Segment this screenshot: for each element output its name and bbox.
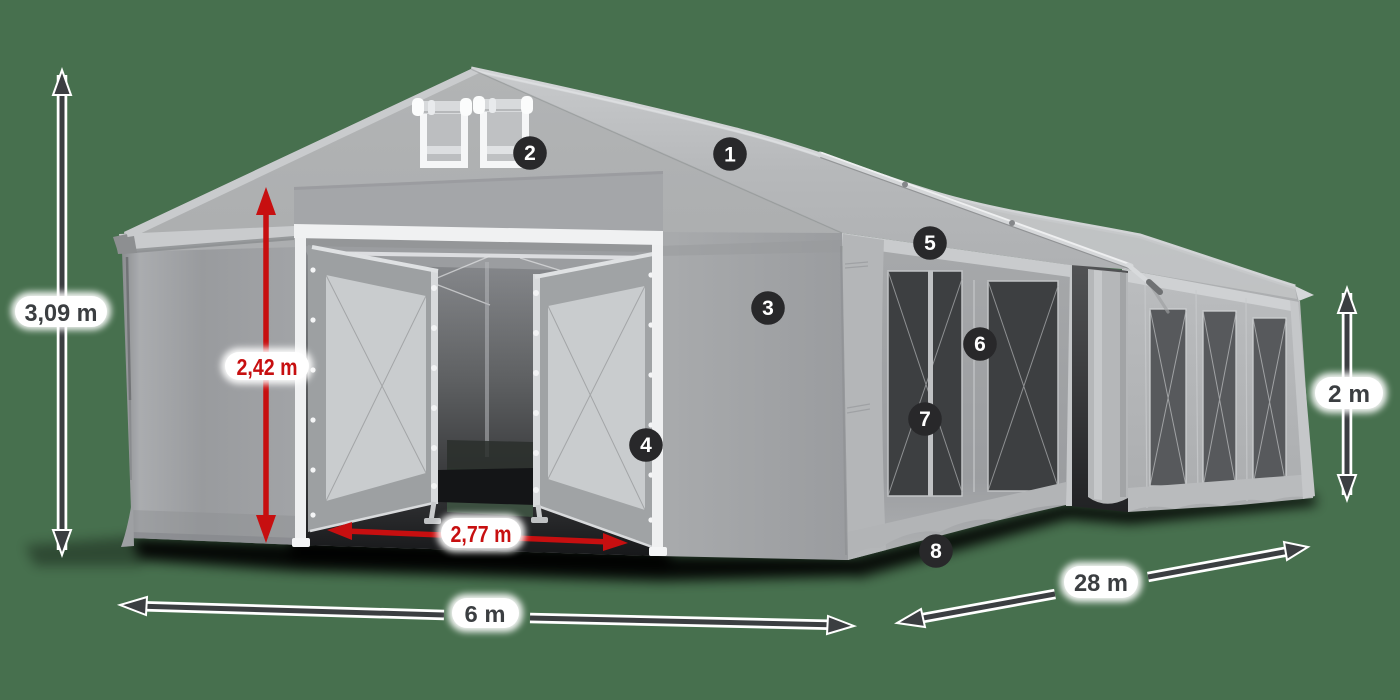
svg-text:6 m: 6 m	[465, 601, 506, 627]
svg-text:2,77 m: 2,77 m	[451, 521, 512, 547]
svg-text:5: 5	[924, 232, 936, 255]
svg-text:1: 1	[724, 144, 736, 167]
svg-text:3,09 m: 3,09 m	[25, 300, 98, 327]
svg-text:3: 3	[762, 297, 774, 320]
svg-text:28 m: 28 m	[1074, 570, 1128, 597]
svg-text:8: 8	[930, 540, 942, 563]
svg-text:2 m: 2 m	[1328, 381, 1370, 408]
svg-text:6: 6	[974, 333, 986, 356]
svg-text:2,42 m: 2,42 m	[237, 354, 298, 380]
svg-text:2: 2	[524, 142, 536, 165]
svg-text:4: 4	[640, 434, 652, 457]
svg-text:7: 7	[919, 408, 931, 431]
